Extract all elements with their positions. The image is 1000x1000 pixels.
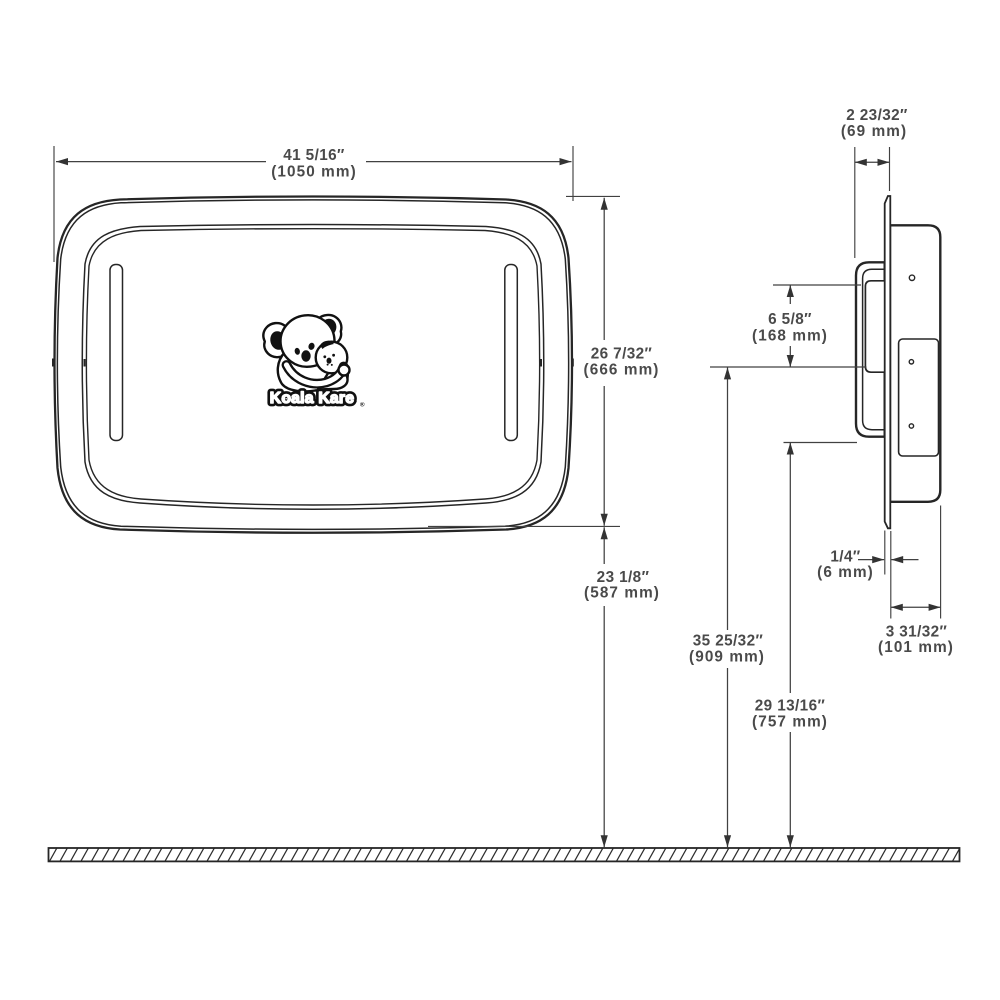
- svg-text:41 5/16″: 41 5/16″: [283, 147, 345, 164]
- svg-text:(6 mm): (6 mm): [817, 564, 874, 581]
- svg-text:(168 mm): (168 mm): [752, 328, 828, 345]
- svg-text:(101 mm): (101 mm): [878, 639, 954, 656]
- svg-text:(666 mm): (666 mm): [584, 362, 660, 379]
- svg-text:(1050 mm): (1050 mm): [271, 164, 357, 181]
- svg-text:26 7/32″: 26 7/32″: [591, 346, 653, 363]
- svg-text:®: ®: [360, 402, 365, 409]
- svg-text:23 1/8″: 23 1/8″: [597, 569, 650, 586]
- svg-text:(909 mm): (909 mm): [689, 649, 765, 666]
- svg-text:Koala Kare: Koala Kare: [270, 390, 355, 407]
- svg-text:(69 mm): (69 mm): [841, 123, 907, 140]
- svg-text:(757 mm): (757 mm): [752, 714, 828, 731]
- svg-text:35 25/32″: 35 25/32″: [693, 633, 764, 650]
- svg-text:3 31/32″: 3 31/32″: [886, 624, 948, 641]
- svg-text:6 5/8″: 6 5/8″: [768, 311, 812, 328]
- svg-text:29 13/16″: 29 13/16″: [755, 698, 826, 715]
- svg-text:1/4″: 1/4″: [830, 549, 860, 566]
- svg-text:2 23/32″: 2 23/32″: [846, 107, 908, 124]
- svg-text:(587 mm): (587 mm): [584, 585, 660, 602]
